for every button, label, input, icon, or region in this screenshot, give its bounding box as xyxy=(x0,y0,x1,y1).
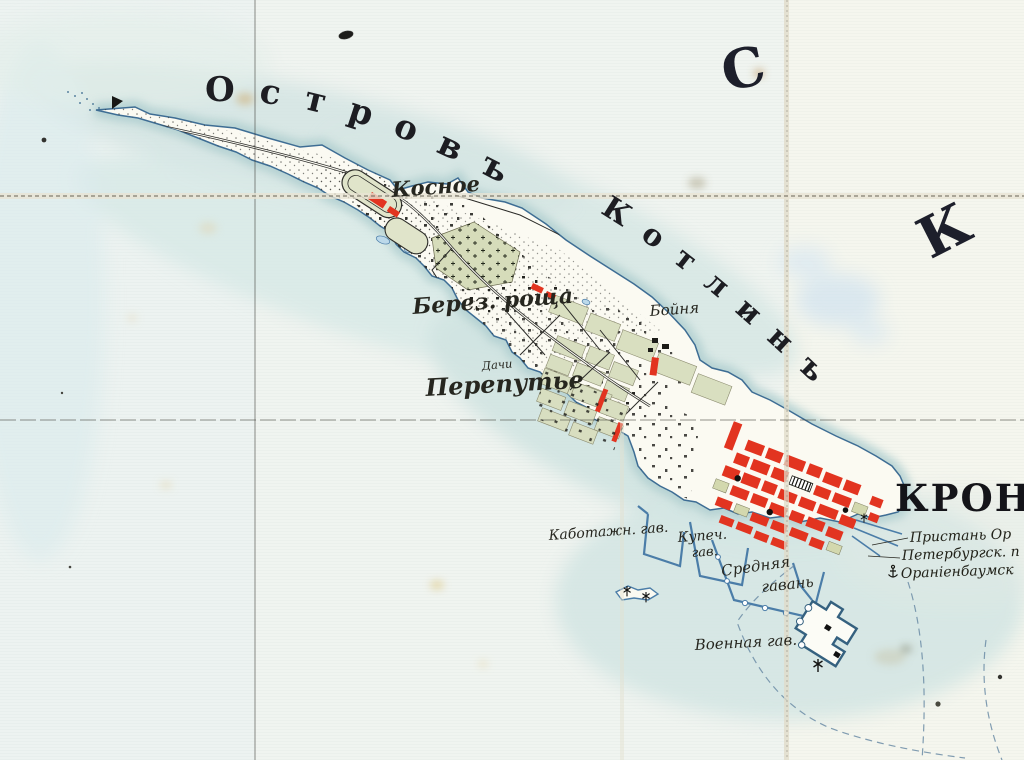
label-boynya: Бойня xyxy=(648,299,700,320)
city-name-kronstadt: КРОНШ xyxy=(895,476,1024,520)
kronstadt-kotlin-map: Островъ Котлинъ С К КРОНШ Косное Берез. … xyxy=(0,0,1024,760)
scanned-map-sheet: Островъ Котлинъ С К КРОНШ Косное Берез. … xyxy=(0,0,1024,760)
label-kupecheskaya-harbor-2: гав. xyxy=(691,544,718,561)
